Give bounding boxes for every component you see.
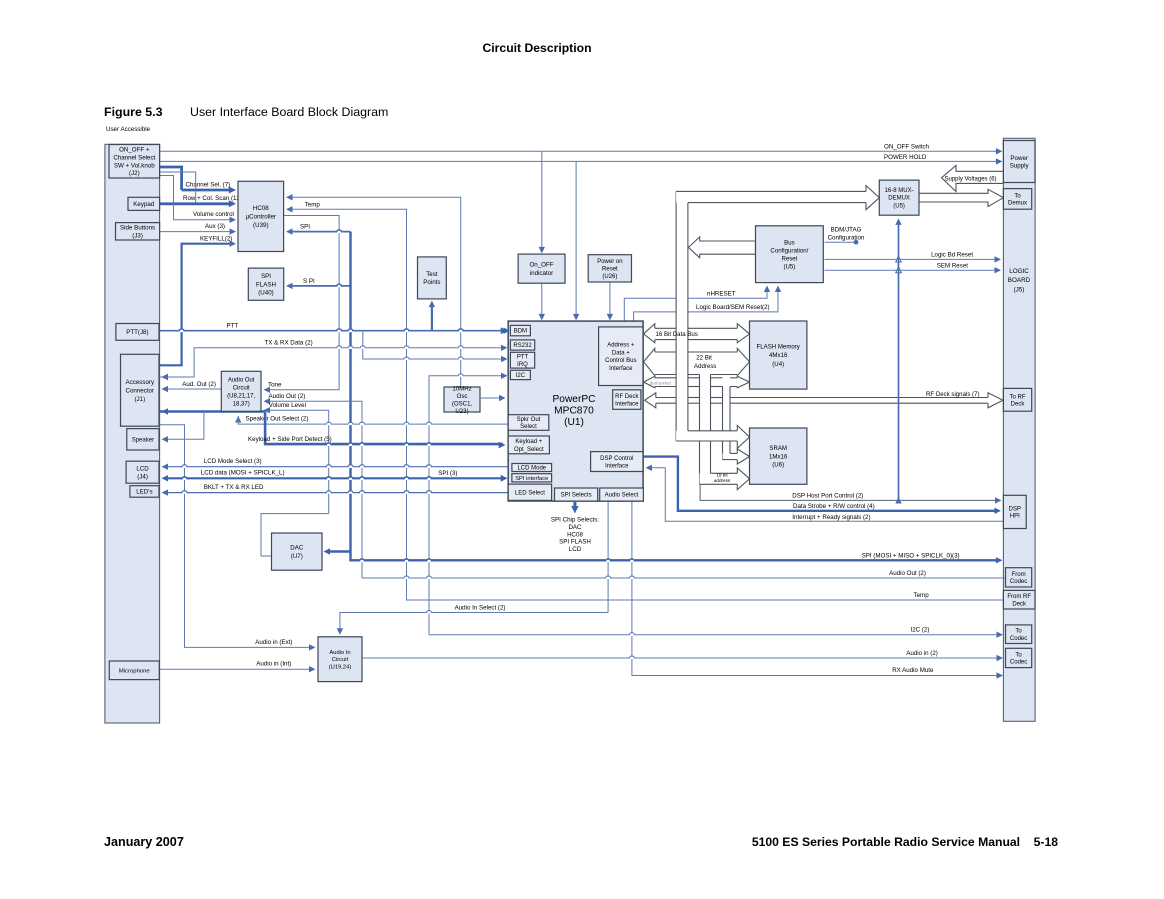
svg-text:(U4): (U4) (772, 361, 784, 368)
svg-text:From RF: From RF (1007, 594, 1031, 600)
svg-text:Opt_Select: Opt_Select (514, 447, 544, 453)
svg-text:Spkr Out: Spkr Out (517, 417, 541, 423)
svg-text:To: To (1015, 653, 1022, 659)
svg-text:Circuit Description: Circuit Description (482, 41, 591, 55)
svg-text:Tone: Tone (268, 382, 282, 389)
svg-text:Interface: Interface (609, 366, 633, 372)
svg-text:(U26): (U26) (602, 274, 617, 280)
svg-text:(J3): (J3) (132, 232, 143, 239)
svg-text:Deck: Deck (1011, 402, 1026, 408)
svg-text:(U1): (U1) (564, 417, 584, 428)
svg-text:Codec: Codec (1010, 579, 1027, 585)
svg-text:FLASH Memory: FLASH Memory (757, 344, 801, 351)
svg-text:(J4): (J4) (137, 474, 148, 481)
svg-text:MPC870: MPC870 (554, 406, 594, 417)
svg-text:Audio In: Audio In (329, 650, 350, 656)
svg-text:DAC: DAC (568, 524, 582, 531)
svg-text:On_OFF: On_OFF (529, 262, 553, 269)
svg-text:PTT: PTT (227, 322, 239, 329)
svg-text:Channel Sel. (7): Channel Sel. (7) (186, 181, 231, 188)
svg-text:Audio in (2): Audio in (2) (906, 650, 938, 657)
svg-text:Select: Select (520, 424, 537, 430)
svg-text:To: To (1015, 629, 1022, 635)
svg-text:Audio in (Int): Audio in (Int) (256, 660, 291, 667)
svg-text:22 Bit: 22 Bit (696, 355, 712, 362)
svg-text:RF Deck signals (7): RF Deck signals (7) (926, 391, 980, 398)
svg-text:LCD: LCD (569, 546, 582, 553)
svg-text:(OSC1,: (OSC1, (452, 400, 473, 407)
svg-text:4Mx16: 4Mx16 (769, 352, 788, 359)
svg-text:ON_OFF +: ON_OFF + (119, 147, 150, 154)
svg-text:Data Strobe + R/W control (4): Data Strobe + R/W control (4) (793, 503, 875, 510)
svg-text:To: To (1014, 193, 1021, 199)
svg-text:Logic Bd Reset: Logic Bd Reset (931, 252, 973, 259)
svg-text:Control Bus: Control Bus (605, 358, 636, 364)
svg-text:S PI: S PI (303, 278, 315, 285)
svg-text:Aux (3): Aux (3) (205, 223, 225, 230)
svg-text:Power: Power (1010, 155, 1028, 162)
svg-text:SPI interface: SPI interface (515, 476, 548, 482)
svg-text:Audio Select: Audio Select (605, 493, 639, 499)
svg-text:BOARD: BOARD (1008, 277, 1031, 284)
svg-text:Connector: Connector (126, 387, 155, 394)
svg-text:Configuration: Configuration (828, 235, 865, 242)
svg-text:SEM Reset: SEM Reset (937, 263, 969, 270)
svg-text:18,37): 18,37) (233, 401, 250, 407)
svg-text:Temp: Temp (305, 201, 321, 208)
svg-text:(J5): (J5) (1014, 286, 1025, 293)
svg-text:ON_OFF Switch: ON_OFF Switch (884, 144, 930, 151)
svg-text:Circuit: Circuit (332, 657, 349, 663)
svg-text:SPI: SPI (261, 273, 271, 280)
svg-text:LCD data (MOSI + SPICLK_L): LCD data (MOSI + SPICLK_L) (201, 470, 285, 477)
svg-text:nHRESET: nHRESET (707, 290, 736, 297)
svg-text:SW + Vol.knob: SW + Vol.knob (114, 162, 155, 169)
svg-text:SPI FLASH: SPI FLASH (559, 539, 591, 546)
svg-text:FLASH: FLASH (256, 281, 276, 288)
svg-text:Microphone: Microphone (119, 668, 151, 674)
svg-text:U23): U23) (455, 408, 468, 415)
svg-text:SPI: SPI (300, 223, 310, 230)
svg-text:Speaker: Speaker (132, 437, 154, 443)
svg-text:Codec: Codec (1010, 660, 1027, 666)
svg-text:BDM/JTAG: BDM/JTAG (831, 226, 862, 233)
svg-text:SPI Selects: SPI Selects (561, 493, 592, 499)
svg-text:Interrupt + Ready signals (2): Interrupt + Ready signals (2) (792, 514, 870, 521)
svg-text:HC08: HC08 (567, 531, 583, 538)
svg-text:PowerPC: PowerPC (552, 394, 595, 405)
svg-text:PTT: PTT (517, 355, 529, 361)
svg-text:Power on: Power on (597, 259, 622, 265)
svg-text:SPI Chip Selects:: SPI Chip Selects: (551, 517, 599, 524)
svg-text:RS232: RS232 (513, 343, 532, 349)
svg-text:16-8 MUX-: 16-8 MUX- (885, 188, 914, 194)
svg-text:Codec: Codec (1010, 636, 1027, 642)
svg-text:DSP Control: DSP Control (600, 456, 633, 462)
svg-text:19 bit: 19 bit (716, 473, 728, 478)
svg-text:BKLT + TX & RX LED: BKLT + TX & RX LED (204, 484, 264, 491)
svg-text:LED's: LED's (136, 489, 152, 496)
svg-text:January 2007: January 2007 (104, 835, 184, 849)
svg-text:SRAM: SRAM (769, 445, 787, 452)
svg-text:Interface: Interface (615, 402, 639, 408)
svg-text:10MHz: 10MHz (452, 385, 471, 392)
svg-text:LOGIC: LOGIC (1009, 268, 1029, 275)
svg-text:Figure 5.3: Figure 5.3 (104, 105, 163, 119)
svg-text:Channel Select: Channel Select (113, 155, 155, 162)
svg-text:(U8,21,17,: (U8,21,17, (227, 393, 255, 399)
svg-text:LCD Mode: LCD Mode (517, 466, 546, 472)
svg-text:indicator: indicator (530, 270, 553, 277)
svg-text:Row + Col. Scan (12): Row + Col. Scan (12) (183, 195, 242, 202)
svg-text:POWER HOLD: POWER HOLD (884, 154, 927, 161)
svg-text:(U6): (U6) (772, 462, 784, 469)
svg-text:(U5): (U5) (893, 203, 905, 209)
svg-text:HPI: HPI (1010, 514, 1020, 520)
svg-text:RF Deck: RF Deck (615, 394, 639, 400)
svg-text:DSP: DSP (1009, 506, 1021, 512)
svg-text:Accessory: Accessory (126, 379, 155, 386)
svg-text:LCD: LCD (136, 465, 149, 472)
svg-text:(U19,24): (U19,24) (329, 665, 352, 671)
svg-text:User Interface Board Block Dia: User Interface Board Block Diagram (190, 105, 388, 119)
svg-text:LCD Mode Select (3): LCD Mode Select (3) (204, 458, 262, 465)
svg-text:LED Select: LED Select (515, 490, 545, 496)
svg-text:µController: µController (246, 214, 276, 221)
svg-text:Interface: Interface (605, 464, 629, 470)
svg-text:SPI (3): SPI (3) (438, 470, 457, 477)
svg-text:BDM: BDM (514, 329, 527, 335)
svg-text:Audio In Select (2): Audio In Select (2) (455, 604, 506, 611)
svg-text:KEYFILL(2): KEYFILL(2) (200, 235, 232, 242)
svg-text:Points: Points (423, 279, 440, 286)
svg-text:Reset: Reset (781, 255, 797, 262)
svg-text:PTT(J8): PTT(J8) (126, 329, 148, 336)
svg-text:Keypad: Keypad (133, 201, 155, 208)
svg-text:Side Buttons: Side Buttons (120, 225, 155, 232)
svg-text:Volume Level: Volume Level (269, 402, 306, 409)
svg-text:(U40): (U40) (258, 290, 273, 297)
svg-text:5100 ES Series Portable Radio: 5100 ES Series Portable Radio Service Ma… (752, 835, 1058, 849)
svg-text:Address +: Address + (607, 343, 635, 349)
svg-text:Osc: Osc (457, 393, 468, 400)
svg-text:DEMUX: DEMUX (888, 196, 910, 202)
svg-text:(J2): (J2) (129, 170, 140, 177)
svg-text:Supply Voltages (6): Supply Voltages (6) (945, 176, 997, 182)
svg-text:TX & RX Data (2): TX & RX Data (2) (265, 340, 313, 347)
svg-text:1Mx16: 1Mx16 (769, 453, 788, 460)
svg-text:Keyload + Side Port Detect (5): Keyload + Side Port Detect (5) (248, 436, 332, 443)
svg-text:Test: Test (426, 271, 438, 278)
svg-text:(J1): (J1) (134, 396, 145, 403)
svg-text:Keyload +: Keyload + (515, 439, 542, 445)
svg-text:Circuit: Circuit (233, 385, 250, 391)
svg-text:Temp: Temp (914, 592, 930, 599)
svg-text:Audio Out (2): Audio Out (2) (269, 393, 306, 400)
svg-text:IRQ: IRQ (517, 362, 528, 368)
svg-text:Bus: Bus (784, 239, 795, 246)
svg-text:Speaker Out Select (2): Speaker Out Select (2) (246, 416, 309, 423)
svg-text:(U39): (U39) (253, 222, 268, 229)
svg-text:User Accessible: User Accessible (106, 126, 151, 133)
svg-text:Data +: Data + (612, 350, 630, 356)
svg-text:Address: Address (694, 363, 716, 370)
svg-text:Reset: Reset (602, 267, 618, 273)
svg-text:I2C (2): I2C (2) (911, 627, 930, 634)
svg-text:HC08: HC08 (253, 205, 269, 212)
svg-text:Aud. Out (2): Aud. Out (2) (182, 381, 216, 388)
svg-text:To RF: To RF (1009, 394, 1025, 400)
svg-text:16 Bit Data Bus: 16 Bit Data Bus (656, 331, 698, 338)
svg-text:(U7): (U7) (291, 553, 303, 560)
svg-text:Demux: Demux (1008, 201, 1027, 207)
svg-text:DSP Host Port Control (2): DSP Host Port Control (2) (792, 492, 863, 499)
svg-text:Volume control: Volume control (193, 211, 234, 218)
svg-text:Audio Out: Audio Out (228, 377, 255, 383)
svg-text:(U5): (U5) (783, 263, 795, 270)
svg-text:SPI (MOSI + MISO + SPICLK_0)(3: SPI (MOSI + MISO + SPICLK_0)(3) (862, 552, 960, 559)
svg-text:Audio Out (2): Audio Out (2) (889, 570, 926, 577)
svg-text:dual ported: dual ported (650, 380, 672, 385)
svg-text:Logic Board/SEM Reset(2): Logic Board/SEM Reset(2) (696, 304, 770, 311)
svg-text:From: From (1012, 572, 1026, 578)
svg-text:Deck: Deck (1012, 601, 1027, 607)
svg-text:DAC: DAC (290, 545, 304, 552)
svg-text:Configuration/: Configuration/ (770, 247, 808, 254)
svg-text:Audio in (Ext): Audio in (Ext) (255, 639, 292, 646)
svg-text:RX Audio Mute: RX Audio Mute (892, 667, 934, 674)
svg-text:I2C: I2C (516, 373, 526, 379)
svg-text:address: address (714, 478, 731, 483)
svg-text:Supply: Supply (1010, 163, 1030, 170)
